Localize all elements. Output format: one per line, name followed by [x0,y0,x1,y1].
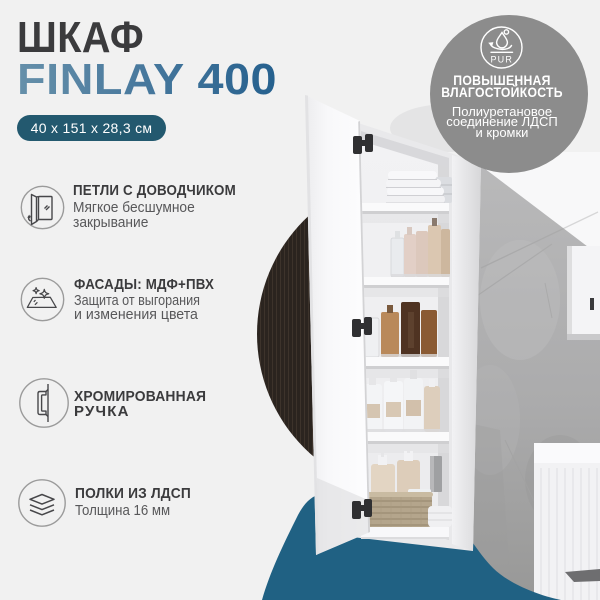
svg-text:PUR: PUR [490,54,513,64]
